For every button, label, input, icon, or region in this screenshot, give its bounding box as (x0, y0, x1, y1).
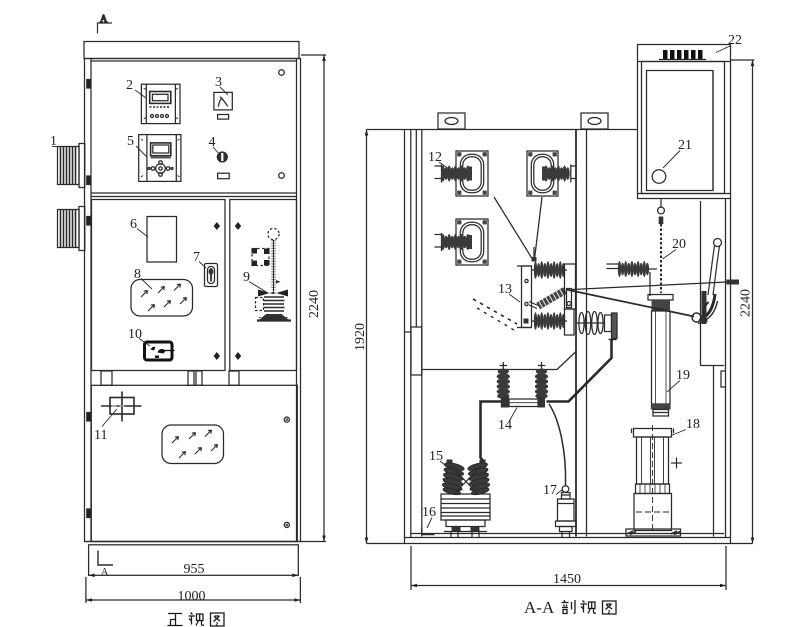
svg-text:6: 6 (130, 217, 137, 232)
svg-text:17: 17 (543, 483, 557, 498)
svg-text:16: 16 (422, 505, 436, 520)
svg-text:A-A: A-A (524, 598, 555, 617)
svg-text:1450: 1450 (553, 572, 581, 587)
svg-text:4: 4 (209, 135, 216, 150)
svg-text:11: 11 (94, 428, 107, 443)
svg-text:7: 7 (193, 250, 200, 265)
svg-text:A: A (101, 567, 109, 578)
svg-text:20: 20 (672, 237, 686, 252)
svg-text:2: 2 (126, 78, 133, 93)
svg-text:A: A (100, 14, 108, 25)
svg-text:10: 10 (128, 327, 142, 342)
svg-text:5: 5 (127, 134, 134, 149)
svg-text:2240: 2240 (307, 290, 322, 318)
svg-text:8: 8 (134, 267, 141, 282)
svg-text:955: 955 (184, 562, 205, 577)
svg-text:1000: 1000 (178, 589, 206, 604)
svg-text:18: 18 (686, 417, 700, 432)
svg-text:9: 9 (243, 270, 250, 285)
svg-text:19: 19 (676, 368, 690, 383)
svg-text:1920: 1920 (353, 323, 368, 351)
svg-text:2240: 2240 (739, 289, 754, 317)
